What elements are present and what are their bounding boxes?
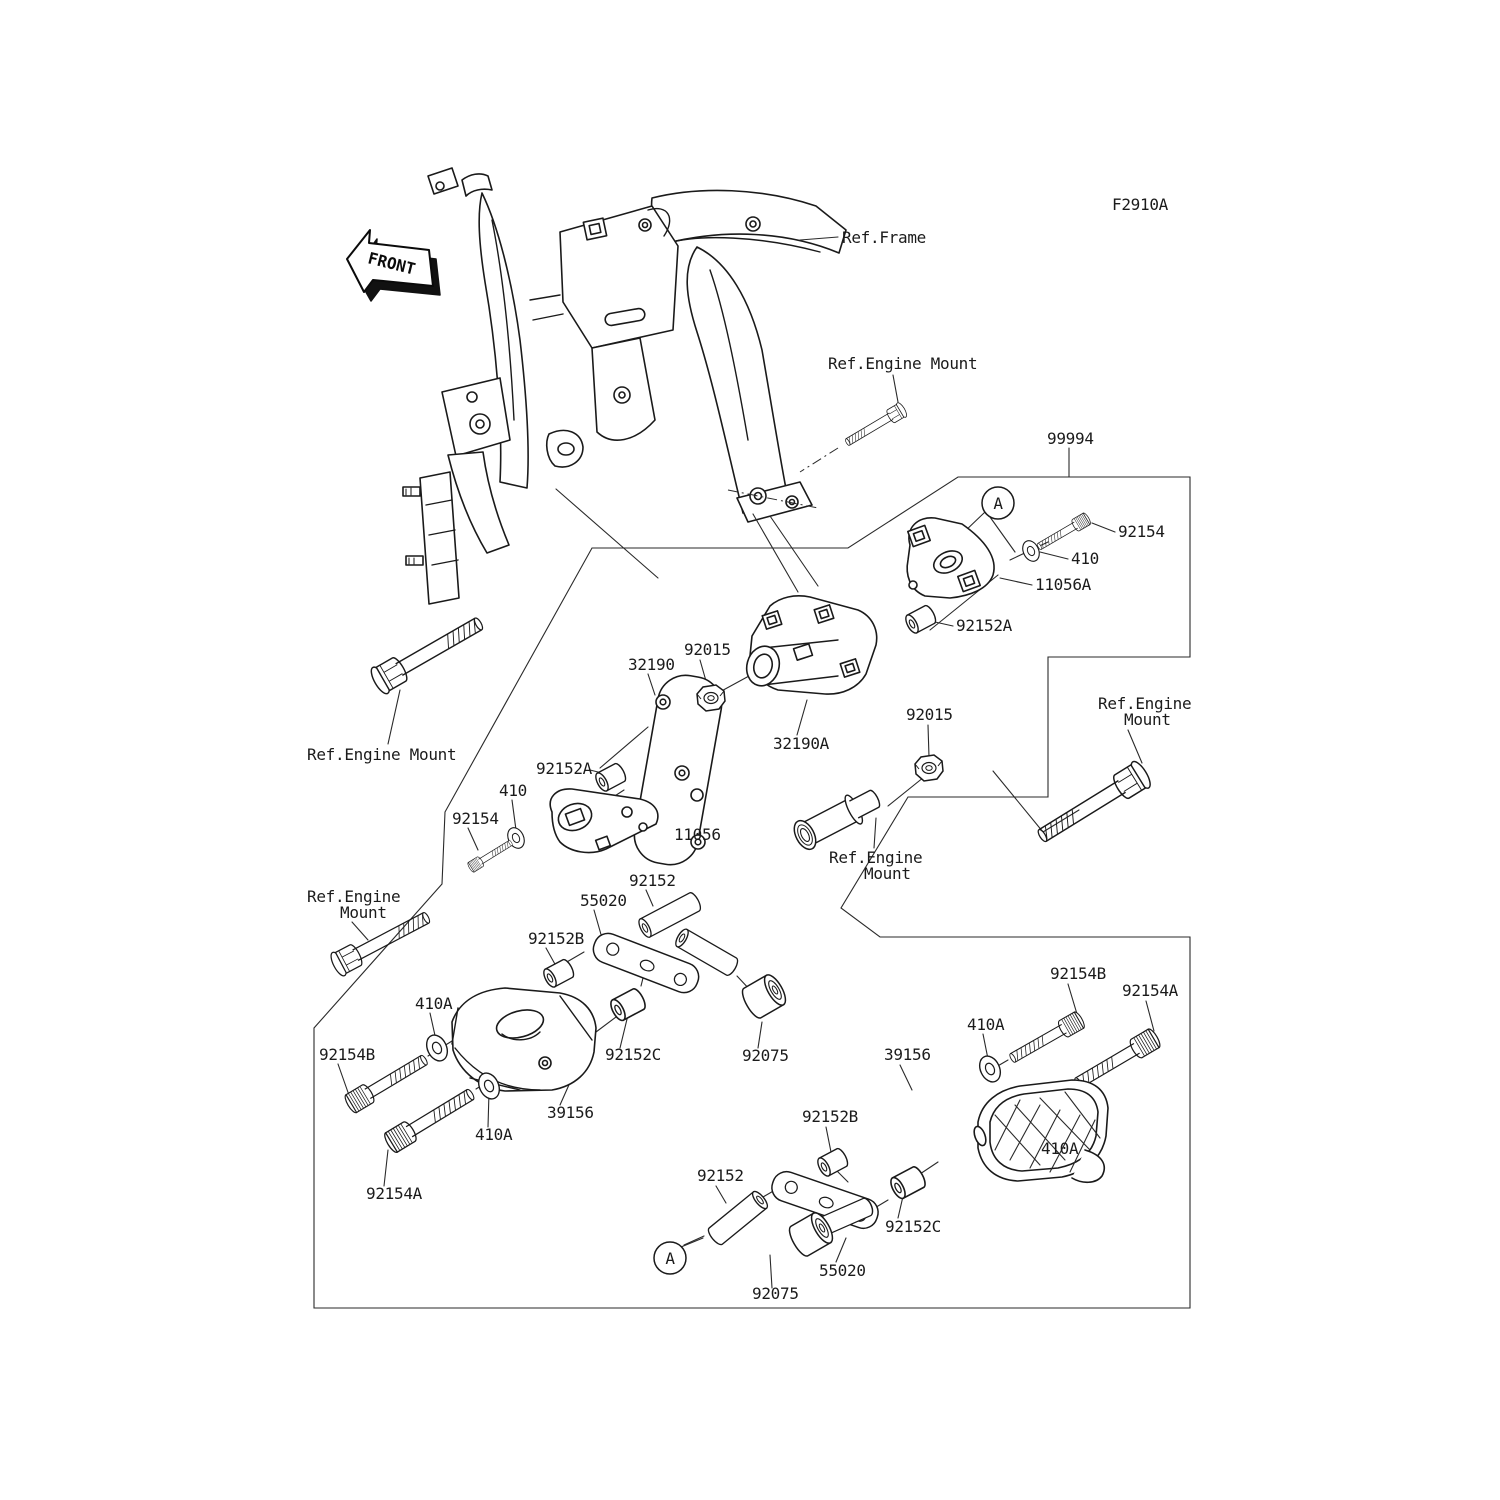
bushing-92152a-mid	[593, 762, 628, 793]
bushing-92152c-right	[888, 1165, 928, 1201]
ref-engine-mount-lower-left-line2: Mount	[340, 903, 387, 922]
washer-410a-left1	[423, 1032, 452, 1065]
part-label-55020-left: 55020	[580, 891, 627, 910]
bolt-92154-mid	[467, 838, 515, 873]
part-label-92075-right: 92075	[752, 1284, 799, 1303]
damper-92075-left	[739, 972, 790, 1021]
part-label-410a-right2: 410A	[1041, 1139, 1079, 1158]
part-label-410a-left1: 410A	[415, 994, 453, 1013]
guard-39156-left	[452, 988, 596, 1091]
bolt-92154b-right	[1006, 1011, 1086, 1067]
part-label-410a-right1: 410A	[967, 1015, 1005, 1034]
part-label-55020-right: 55020	[819, 1261, 866, 1280]
parts-diagram-page: { "diagram": { "code": "F2910A", "orient…	[0, 0, 1500, 1500]
part-label-92015-right: 92015	[906, 705, 953, 724]
part-label-92154a-right: 92154A	[1122, 981, 1179, 1000]
part-label-92152c-right: 92152C	[885, 1217, 941, 1236]
bolt-axis-dashdot	[800, 448, 838, 472]
bolt-engine-mount-left	[368, 610, 488, 697]
frame-artwork	[403, 168, 846, 604]
part-label-32190a: 32190A	[773, 734, 830, 753]
ref-engine-mount-top-label: Ref.Engine Mount	[828, 354, 977, 373]
part-label-11056: 11056	[674, 825, 721, 844]
washer-410a-right1	[976, 1053, 1005, 1086]
fiche-code-label: F2910A	[1112, 195, 1169, 214]
ref-engine-mount-left-label: Ref.Engine Mount	[307, 745, 456, 764]
detail-marker-a-bottom: A	[654, 1242, 686, 1274]
bracket-11056a	[907, 518, 994, 598]
part-label-410a-left2: 410A	[475, 1125, 513, 1144]
spacer-92152-right	[706, 1189, 770, 1247]
part-label-92152a-top: 92152A	[956, 616, 1013, 635]
part-label-92152b-left: 92152B	[528, 929, 584, 948]
nut-92015-right	[915, 755, 943, 781]
spacer-92152-left	[637, 891, 703, 939]
bolt-92154a-left	[382, 1084, 478, 1154]
collar-engine-mount-mid	[790, 783, 885, 853]
bushing-92152a-top	[903, 604, 938, 635]
part-label-92154b-left: 92154B	[319, 1045, 375, 1064]
nut-92015-left	[697, 685, 725, 711]
part-label-92154a-left: 92154A	[366, 1184, 423, 1203]
part-label-92154b-right: 92154B	[1050, 964, 1106, 983]
bolt-engine-mount-right	[1032, 759, 1154, 850]
bushing-92152b-left	[541, 958, 576, 989]
part-label-92152-left: 92152	[629, 871, 676, 890]
ref-frame-label: Ref.Frame	[842, 228, 926, 247]
bolt-92154-top	[1035, 512, 1092, 553]
exploded-parts-diagram: FRONT A	[0, 0, 1500, 1500]
bushing-92152c-left	[608, 987, 648, 1023]
detail-marker-a-bottom-label: A	[665, 1249, 675, 1268]
detail-marker-a-top: A	[982, 487, 1014, 519]
part-label-92154-top: 92154	[1118, 522, 1165, 541]
part-label-39156-right: 39156	[884, 1045, 931, 1064]
ref-engine-mount-mid-line2: Mount	[864, 864, 911, 883]
bracket-32190a	[742, 596, 876, 694]
front-direction-arrow: FRONT	[347, 230, 440, 301]
part-label-92075-left: 92075	[742, 1046, 789, 1065]
bolt-engine-mount-top	[842, 401, 908, 450]
ref-engine-mount-right-line2: Mount	[1124, 710, 1171, 729]
washer-410-top	[1020, 538, 1043, 564]
part-label-410-mid: 410	[499, 781, 527, 800]
guard-39156-right	[972, 1080, 1108, 1182]
part-label-92152-right: 92152	[697, 1166, 744, 1185]
part-label-39156-left: 39156	[547, 1103, 594, 1122]
part-label-99994: 99994	[1047, 429, 1094, 448]
part-label-92152a-mid: 92152A	[536, 759, 593, 778]
detail-marker-a-top-label: A	[993, 494, 1003, 513]
part-label-92015-left: 92015	[684, 640, 731, 659]
part-label-410-top: 410	[1071, 549, 1099, 568]
kit-boundary	[314, 477, 1190, 1308]
part-label-32190: 32190	[628, 655, 675, 674]
part-label-92152b-right: 92152B	[802, 1107, 858, 1126]
part-label-92152c-left: 92152C	[605, 1045, 661, 1064]
part-label-92154-mid: 92154	[452, 809, 499, 828]
bushing-92152b-right	[815, 1147, 850, 1178]
part-label-11056a: 11056A	[1035, 575, 1092, 594]
